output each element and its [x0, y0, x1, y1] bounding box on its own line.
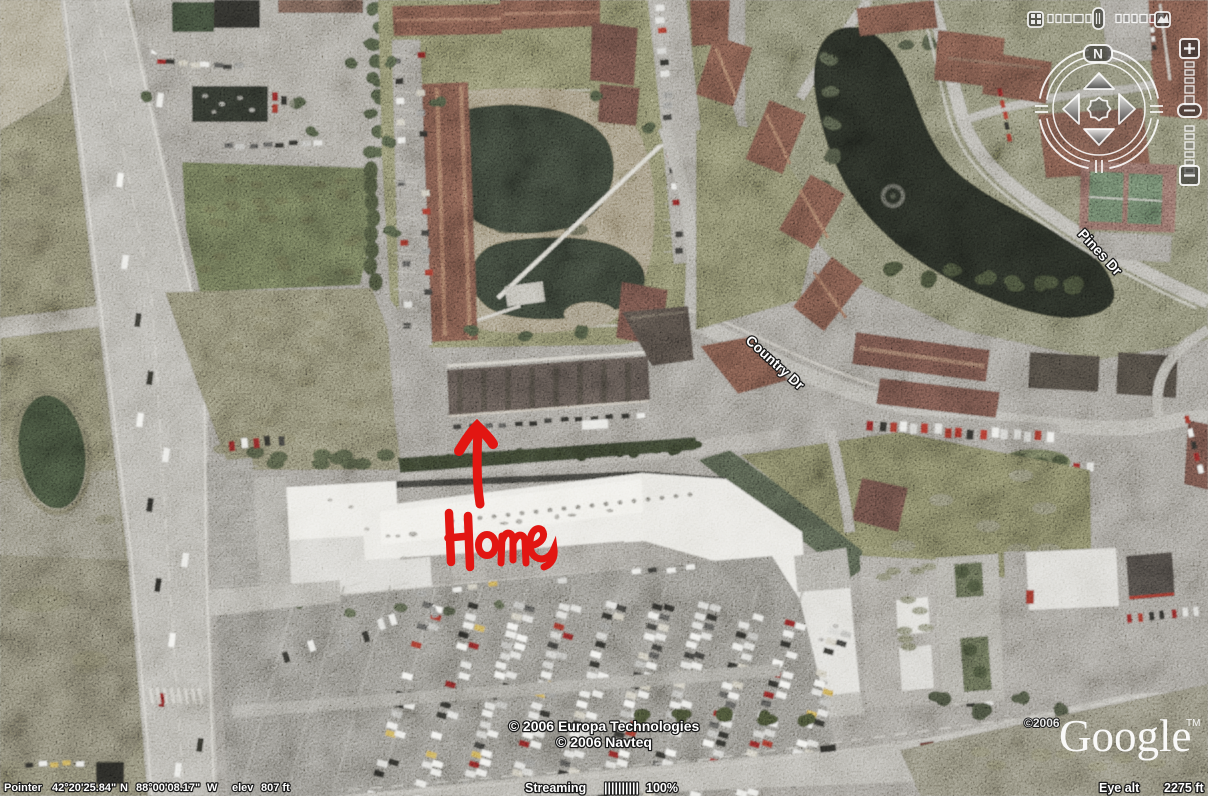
- svg-text:©2006: ©2006: [1024, 716, 1060, 730]
- svg-text:elev: elev: [232, 782, 254, 794]
- svg-text:42°20'25.84": 42°20'25.84": [52, 782, 116, 794]
- svg-text:Pines Dr: Pines Dr: [1075, 226, 1126, 279]
- svg-text:Eye alt: Eye alt: [1099, 781, 1140, 795]
- svg-text:TM: TM: [1186, 718, 1200, 729]
- svg-text:807 ft: 807 ft: [261, 782, 290, 794]
- svg-text:100%: 100%: [646, 781, 678, 795]
- svg-text:© 2006 Navteq: © 2006 Navteq: [556, 734, 652, 750]
- svg-text:88°00'08.17": 88°00'08.17": [136, 782, 200, 794]
- svg-text:W: W: [207, 782, 218, 794]
- svg-text:Streaming: Streaming: [525, 781, 586, 795]
- svg-text:© 2006 Europa Technologies: © 2006 Europa Technologies: [509, 718, 700, 734]
- svg-text:N: N: [120, 782, 128, 794]
- svg-text:N: N: [1093, 47, 1103, 62]
- svg-text:||||||||||: ||||||||||: [604, 781, 639, 795]
- svg-text:Google: Google: [1059, 711, 1191, 761]
- svg-text:2275 ft: 2275 ft: [1164, 781, 1204, 795]
- svg-text:Pointer: Pointer: [4, 782, 43, 794]
- svg-text:Country Dr: Country Dr: [743, 332, 808, 393]
